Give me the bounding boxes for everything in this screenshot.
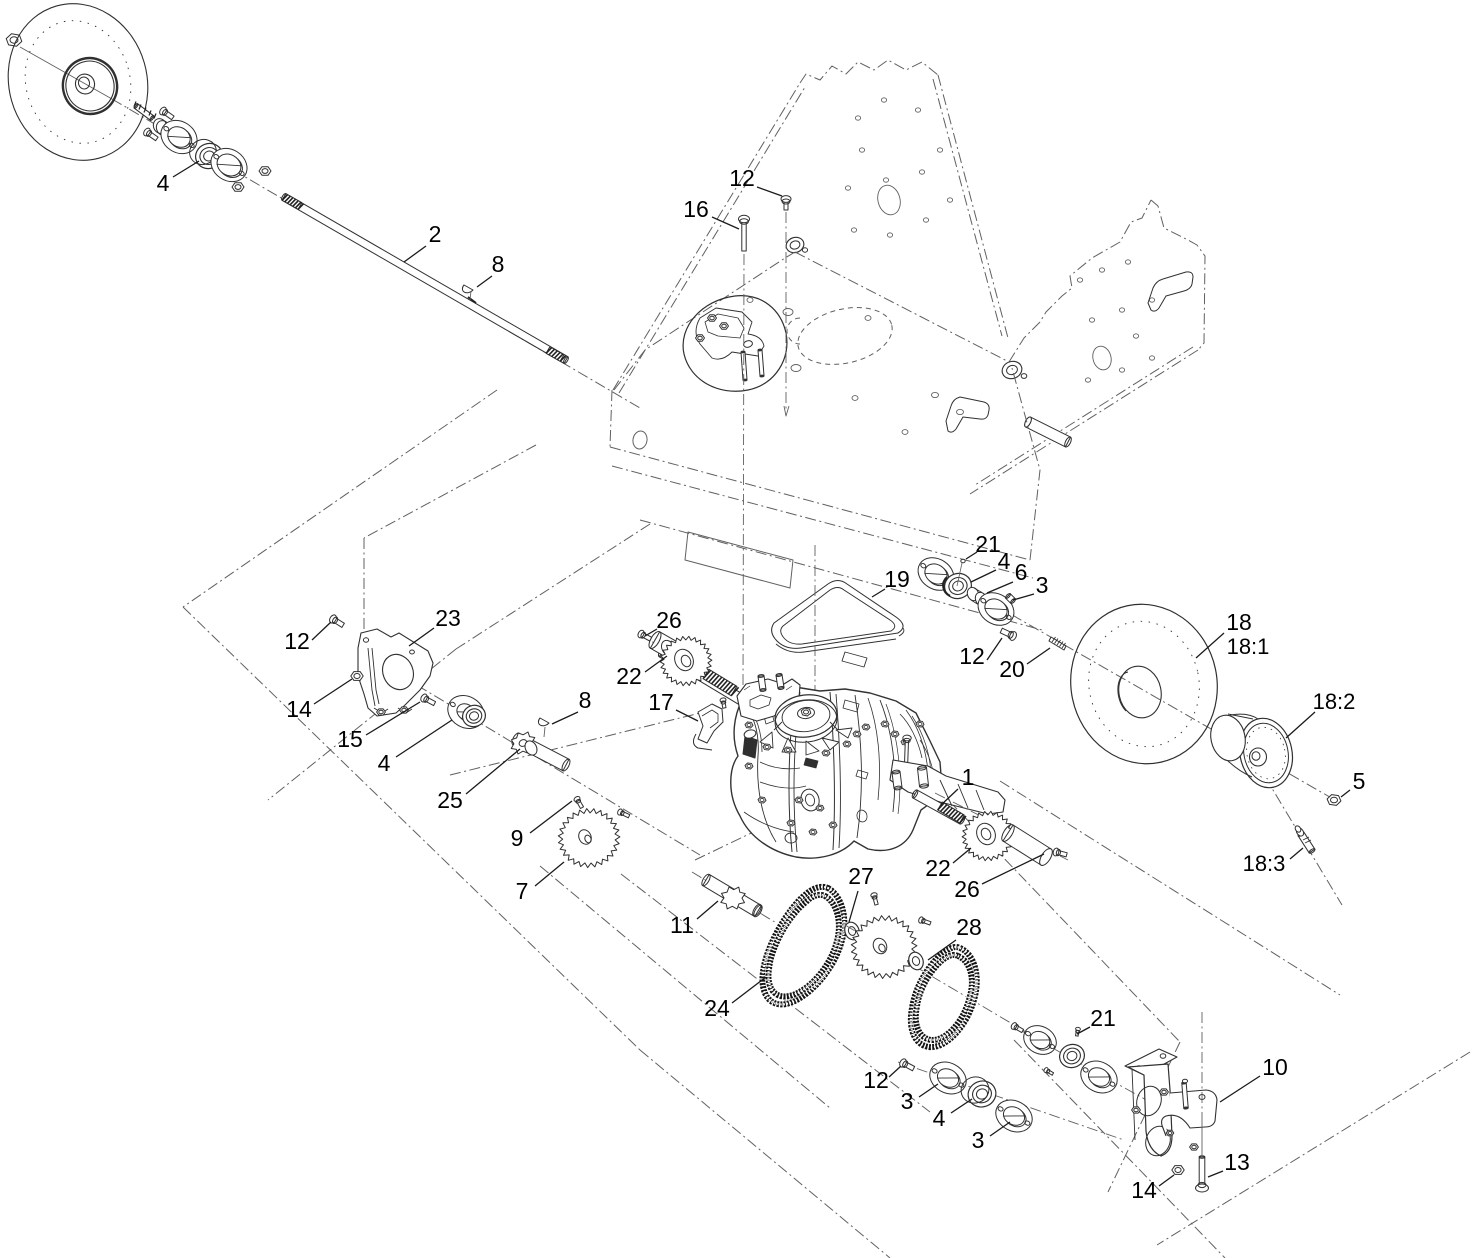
svg-text:12: 12 — [863, 1067, 889, 1093]
svg-text:8: 8 — [492, 251, 505, 277]
svg-text:5: 5 — [1353, 768, 1366, 794]
svg-text:12: 12 — [284, 628, 310, 654]
svg-text:4: 4 — [998, 548, 1011, 574]
svg-text:22: 22 — [616, 663, 642, 689]
svg-text:27: 27 — [848, 863, 874, 889]
svg-text:4: 4 — [157, 170, 170, 196]
svg-text:4: 4 — [378, 750, 391, 776]
svg-text:18:2: 18:2 — [1313, 689, 1356, 714]
svg-text:22: 22 — [925, 855, 951, 881]
svg-text:17: 17 — [648, 689, 674, 715]
svg-text:15: 15 — [337, 726, 363, 752]
svg-text:10: 10 — [1262, 1054, 1288, 1080]
svg-text:9: 9 — [511, 825, 524, 851]
svg-text:23: 23 — [435, 605, 461, 631]
svg-text:11: 11 — [670, 912, 694, 938]
svg-text:2: 2 — [429, 221, 442, 247]
svg-text:4: 4 — [933, 1105, 946, 1131]
svg-text:3: 3 — [1036, 572, 1049, 598]
svg-text:8: 8 — [579, 687, 592, 713]
svg-text:14: 14 — [1131, 1177, 1157, 1203]
svg-text:24: 24 — [704, 995, 730, 1021]
svg-text:1: 1 — [962, 764, 975, 790]
svg-text:12: 12 — [959, 643, 985, 669]
svg-text:26: 26 — [656, 607, 682, 633]
svg-text:14: 14 — [286, 696, 312, 722]
svg-text:7: 7 — [516, 878, 529, 904]
svg-text:25: 25 — [437, 787, 463, 813]
svg-text:21: 21 — [1090, 1005, 1116, 1031]
svg-text:6: 6 — [1015, 559, 1028, 585]
svg-text:18: 18 — [1226, 609, 1252, 635]
svg-text:12: 12 — [729, 165, 755, 191]
svg-text:20: 20 — [999, 656, 1025, 682]
svg-text:3: 3 — [901, 1088, 914, 1114]
svg-text:18:1: 18:1 — [1227, 634, 1270, 659]
svg-text:16: 16 — [683, 196, 709, 222]
svg-text:19: 19 — [884, 566, 910, 592]
svg-text:3: 3 — [972, 1127, 985, 1153]
svg-text:18:3: 18:3 — [1243, 851, 1286, 876]
svg-text:28: 28 — [956, 914, 982, 940]
svg-text:13: 13 — [1224, 1149, 1250, 1175]
svg-text:26: 26 — [954, 876, 980, 902]
